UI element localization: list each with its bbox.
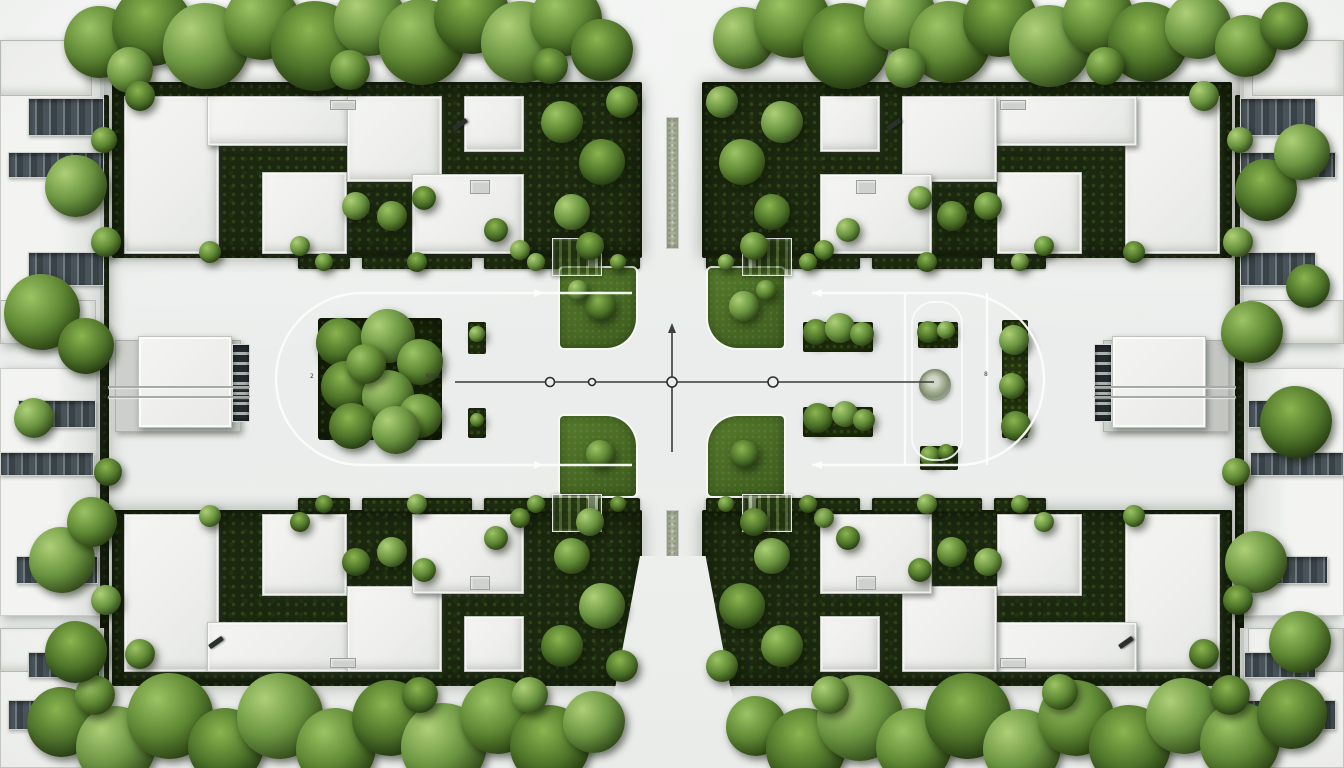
tree <box>527 253 545 271</box>
tree <box>908 186 932 210</box>
tree <box>1260 386 1332 458</box>
tree <box>803 403 833 433</box>
tree <box>377 537 407 567</box>
tree <box>740 232 768 260</box>
tree <box>579 583 625 629</box>
tree <box>342 192 370 220</box>
tree <box>761 101 803 143</box>
roof-hatch <box>856 180 876 194</box>
tree <box>917 252 937 272</box>
tree <box>470 413 484 427</box>
tree <box>330 50 370 90</box>
tree <box>532 48 568 84</box>
tree <box>920 446 940 466</box>
tree <box>754 194 790 230</box>
tree <box>579 139 625 185</box>
tree <box>1274 124 1330 180</box>
tree <box>853 409 875 431</box>
tower-window-band <box>0 452 94 476</box>
building-roof <box>902 586 997 672</box>
building-roof <box>902 96 997 182</box>
tree <box>1286 264 1330 308</box>
roof-hatch <box>330 100 356 110</box>
walkway-rail <box>1094 386 1236 388</box>
tree <box>568 280 588 300</box>
roof-hatch <box>1000 658 1026 668</box>
tree <box>706 650 738 682</box>
tree <box>974 192 1002 220</box>
building-roof <box>1125 96 1220 254</box>
tree <box>412 558 436 582</box>
tree <box>1223 227 1253 257</box>
tree <box>1011 253 1029 271</box>
tree <box>14 398 54 438</box>
tree <box>512 677 548 713</box>
scene-layer <box>0 0 1344 768</box>
tree <box>729 291 759 321</box>
roof-hatch <box>470 576 490 590</box>
tree <box>799 495 817 513</box>
tree <box>1123 505 1145 527</box>
pavilion-skylight-slats <box>232 344 250 422</box>
tree <box>125 639 155 669</box>
walkway-rail <box>1094 396 1236 398</box>
tree <box>576 232 604 260</box>
building-roof <box>464 616 524 672</box>
tree <box>1222 458 1250 486</box>
tree <box>761 625 803 667</box>
tree <box>917 321 939 343</box>
tree <box>484 218 508 242</box>
tree <box>91 585 121 615</box>
pavilion-roof <box>138 336 232 428</box>
building-roof <box>820 616 880 672</box>
tree <box>1042 674 1078 710</box>
tree <box>938 444 954 460</box>
tree <box>199 241 221 263</box>
tree <box>754 538 790 574</box>
tree <box>67 497 117 547</box>
tree <box>719 139 765 185</box>
tree <box>91 227 121 257</box>
tree <box>885 48 925 88</box>
tree <box>342 548 370 576</box>
tree <box>799 253 817 271</box>
tree <box>718 496 734 512</box>
tree <box>541 101 583 143</box>
tree <box>1269 611 1331 673</box>
tower-window-band <box>28 98 104 136</box>
tree <box>469 326 485 342</box>
tree <box>1034 236 1054 256</box>
building-roof <box>412 174 524 254</box>
tree <box>199 505 221 527</box>
tree <box>372 406 420 454</box>
tree <box>585 291 615 321</box>
tree <box>402 677 438 713</box>
tree <box>1225 531 1287 593</box>
tree <box>290 236 310 256</box>
tree <box>377 201 407 231</box>
tree <box>527 495 545 513</box>
tree <box>315 253 333 271</box>
roof-hatch <box>1000 100 1026 110</box>
tree <box>346 344 386 384</box>
tree <box>571 19 633 81</box>
tree <box>706 86 738 118</box>
tree <box>606 650 638 682</box>
tree <box>610 254 626 270</box>
gravel-strip <box>666 117 679 249</box>
tree <box>999 325 1029 355</box>
tree <box>1086 47 1124 85</box>
building-roof <box>347 96 442 182</box>
building-roof <box>347 586 442 672</box>
tree <box>1189 639 1219 669</box>
tree <box>290 512 310 532</box>
tree <box>811 676 849 714</box>
tree <box>407 494 427 514</box>
tree <box>836 526 860 550</box>
tree <box>315 495 333 513</box>
tree <box>45 155 107 217</box>
building-roof <box>464 96 524 152</box>
tree <box>719 583 765 629</box>
tree <box>937 201 967 231</box>
tree <box>1257 679 1327 749</box>
tree <box>1034 512 1054 532</box>
pavilion-skylight-slats <box>1094 344 1112 422</box>
tree <box>606 86 638 118</box>
tree <box>814 508 834 528</box>
tree <box>917 494 937 514</box>
building-roof <box>820 96 880 152</box>
tree <box>1223 585 1253 615</box>
tree <box>1001 411 1031 441</box>
tree <box>412 186 436 210</box>
tree <box>718 254 734 270</box>
walkway-rail <box>108 396 250 398</box>
walkway-rail <box>108 386 250 388</box>
tree <box>610 496 626 512</box>
tree <box>1260 2 1308 50</box>
tree <box>756 280 776 300</box>
tree <box>999 373 1025 399</box>
tree <box>814 240 834 260</box>
tree <box>554 194 590 230</box>
tree <box>836 218 860 242</box>
tree <box>484 526 508 550</box>
tree <box>740 508 768 536</box>
tree <box>407 252 427 272</box>
tree <box>1221 301 1283 363</box>
tree <box>1189 81 1219 111</box>
tree <box>91 127 117 153</box>
tree <box>510 508 530 528</box>
pavilion-roof <box>1112 336 1206 428</box>
tree <box>974 548 1002 576</box>
tree <box>125 81 155 111</box>
building-roof <box>412 514 524 594</box>
tree <box>563 691 625 753</box>
tree <box>45 621 107 683</box>
tree <box>541 625 583 667</box>
roof-hatch <box>856 576 876 590</box>
tree <box>576 508 604 536</box>
stone-circle-feature <box>919 369 951 401</box>
tree <box>554 538 590 574</box>
tree <box>329 403 375 449</box>
tree <box>94 458 122 486</box>
roof-hatch <box>470 180 490 194</box>
tree <box>850 322 874 346</box>
aerial-masterplan-render: KIVB28 <box>0 0 1344 768</box>
tree <box>908 558 932 582</box>
tree <box>1011 495 1029 513</box>
building-roof <box>820 514 932 594</box>
tree <box>58 318 114 374</box>
tree <box>1123 241 1145 263</box>
tree <box>1210 675 1250 715</box>
tree <box>1227 127 1253 153</box>
tree <box>730 440 758 468</box>
tree <box>937 321 955 339</box>
tree <box>937 537 967 567</box>
tree <box>586 440 614 468</box>
building-roof <box>124 96 219 254</box>
roof-hatch <box>330 658 356 668</box>
